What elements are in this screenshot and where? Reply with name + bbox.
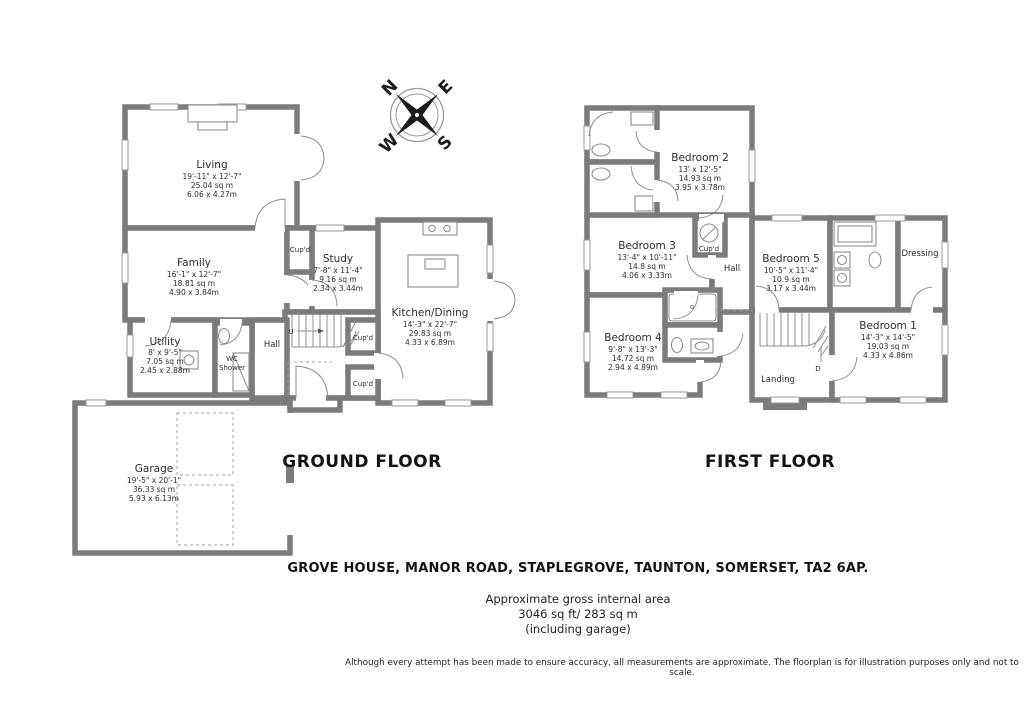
living-french-doors <box>293 134 324 181</box>
area-note: (including garage) <box>133 622 1023 636</box>
first-floor-plan: D Bedroom 2 13' x 12'-5" 14.93 sq m 3.95… <box>575 100 955 420</box>
cupboard-label: Cup'd <box>699 245 719 253</box>
hall-west-shape <box>252 320 287 398</box>
area-title: Approximate gross internal area <box>133 592 1023 606</box>
garage-dims-ft: 19'-5" x 20'-1" <box>127 476 181 485</box>
garage-dims-m: 5.93 x 6.13m <box>129 494 179 503</box>
kitchen-french-doors <box>486 279 515 321</box>
bedroom5-area: 10.9 sq m <box>772 275 809 284</box>
kitchen-hob <box>423 222 457 235</box>
bedroom5-dims-m: 3.17 x 3.44m <box>766 284 816 293</box>
bedroom1-dims-ft: 14'-3" x 14'-5" <box>861 333 915 342</box>
study-dims-ft: 7'-8" x 11'-4" <box>313 266 363 275</box>
garage-label: Garage <box>135 463 173 475</box>
bedroom2-area: 14.93 sq m <box>679 174 721 183</box>
family-area: 18.81 sq m <box>173 279 215 288</box>
bedroom2-dims-ft: 13' x 12'-5" <box>678 165 721 174</box>
bedroom3-dims-ft: 13'-4" x 10'-11" <box>617 253 676 262</box>
bedroom4-dims-m: 2.94 x 4.89m <box>608 363 658 372</box>
bedroom3-dims-m: 4.06 x 3.33m <box>622 271 672 280</box>
bedroom4-area: 14.72 sq m <box>612 354 654 363</box>
bedroom1-label: Bedroom 1 <box>859 320 917 332</box>
property-address: GROVE HOUSE, MANOR ROAD, STAPLEGROVE, TA… <box>133 561 1023 576</box>
bedroom1-area: 19.03 sq m <box>867 342 909 351</box>
ground-floor-title: GROUND FLOOR <box>212 452 512 472</box>
kitchen-island <box>408 255 458 287</box>
living-dims-ft: 19'-11" x 12'-7" <box>182 172 241 181</box>
study-area: 9.16 sq m <box>319 275 356 284</box>
utility-dims-m: 2.45 x 2.88m <box>140 366 190 375</box>
utility-area: 7.05 sq m <box>146 357 183 366</box>
bedroom4-dims-ft: 9'-8" x 13'-3" <box>608 345 658 354</box>
garage-area: 36.33 sq m <box>133 485 175 494</box>
cupboard-label: Cup'd <box>290 246 310 254</box>
bedroom2-label: Bedroom 2 <box>671 152 729 164</box>
stairs-down-label: D <box>815 365 820 373</box>
family-label: Family <box>177 257 211 269</box>
living-label: Living <box>196 159 227 171</box>
bedroom1-dims-m: 4.33 x 4.86m <box>863 351 913 360</box>
airing-cupboard-tank <box>700 224 718 242</box>
study-dims-m: 2.34 x 3.44m <box>313 284 363 293</box>
landing-shape <box>752 310 832 400</box>
living-dims-m: 6.06 x 4.27m <box>187 190 237 199</box>
utility-label: Utility <box>150 336 181 348</box>
kitchen-dims-ft: 14'-3" x 22'-7" <box>403 320 457 329</box>
kitchen-label: Kitchen/Dining <box>392 307 469 319</box>
study-label: Study <box>323 253 353 265</box>
bedroom3-label: Bedroom 3 <box>618 240 676 252</box>
ground-floor-plan: U Living 19'-11" x 12'-7" 25.04 sq m 6.0… <box>60 95 520 565</box>
family-dims-ft: 16'-1" x 12'-7" <box>167 270 221 279</box>
cupboard-label: Cup'd <box>353 380 373 388</box>
wc-label: WC <box>226 355 238 363</box>
hall-first-label: Hall <box>724 264 740 274</box>
bedroom5-dims-ft: 10'-5" x 11'-4" <box>764 266 818 275</box>
dressing-label: Dressing <box>901 249 938 259</box>
first-floor-title: FIRST FLOOR <box>620 452 920 472</box>
living-area: 25.04 sq m <box>191 181 233 190</box>
kitchen-dims-m: 4.33 x 6.89m <box>405 338 455 347</box>
bedroom4-label: Bedroom 4 <box>604 332 662 344</box>
dressing-shape <box>898 218 945 310</box>
bedroom2-dims-m: 3.95 x 3.78m <box>675 183 725 192</box>
landing-label: Landing <box>761 375 795 385</box>
garage-shape <box>75 403 290 553</box>
utility-dims-ft: 8' x 9'-5" <box>148 348 182 357</box>
bedroom5-label: Bedroom 5 <box>762 253 820 265</box>
stairs-up-label: U <box>288 328 293 336</box>
floorplan-page: N E S W <box>0 0 1024 723</box>
cupboard-label: Cup'd <box>353 334 373 342</box>
disclaimer-text: Although every attempt has been made to … <box>340 658 1024 678</box>
hall-label: Hall <box>264 340 280 350</box>
area-value: 3046 sq ft/ 283 sq m <box>133 607 1023 621</box>
shower-label: Shower <box>219 364 245 372</box>
bedroom3-area: 14.8 sq m <box>628 262 665 271</box>
family-dims-m: 4.90 x 3.84m <box>169 288 219 297</box>
kitchen-area: 29.83 sq m <box>409 329 451 338</box>
